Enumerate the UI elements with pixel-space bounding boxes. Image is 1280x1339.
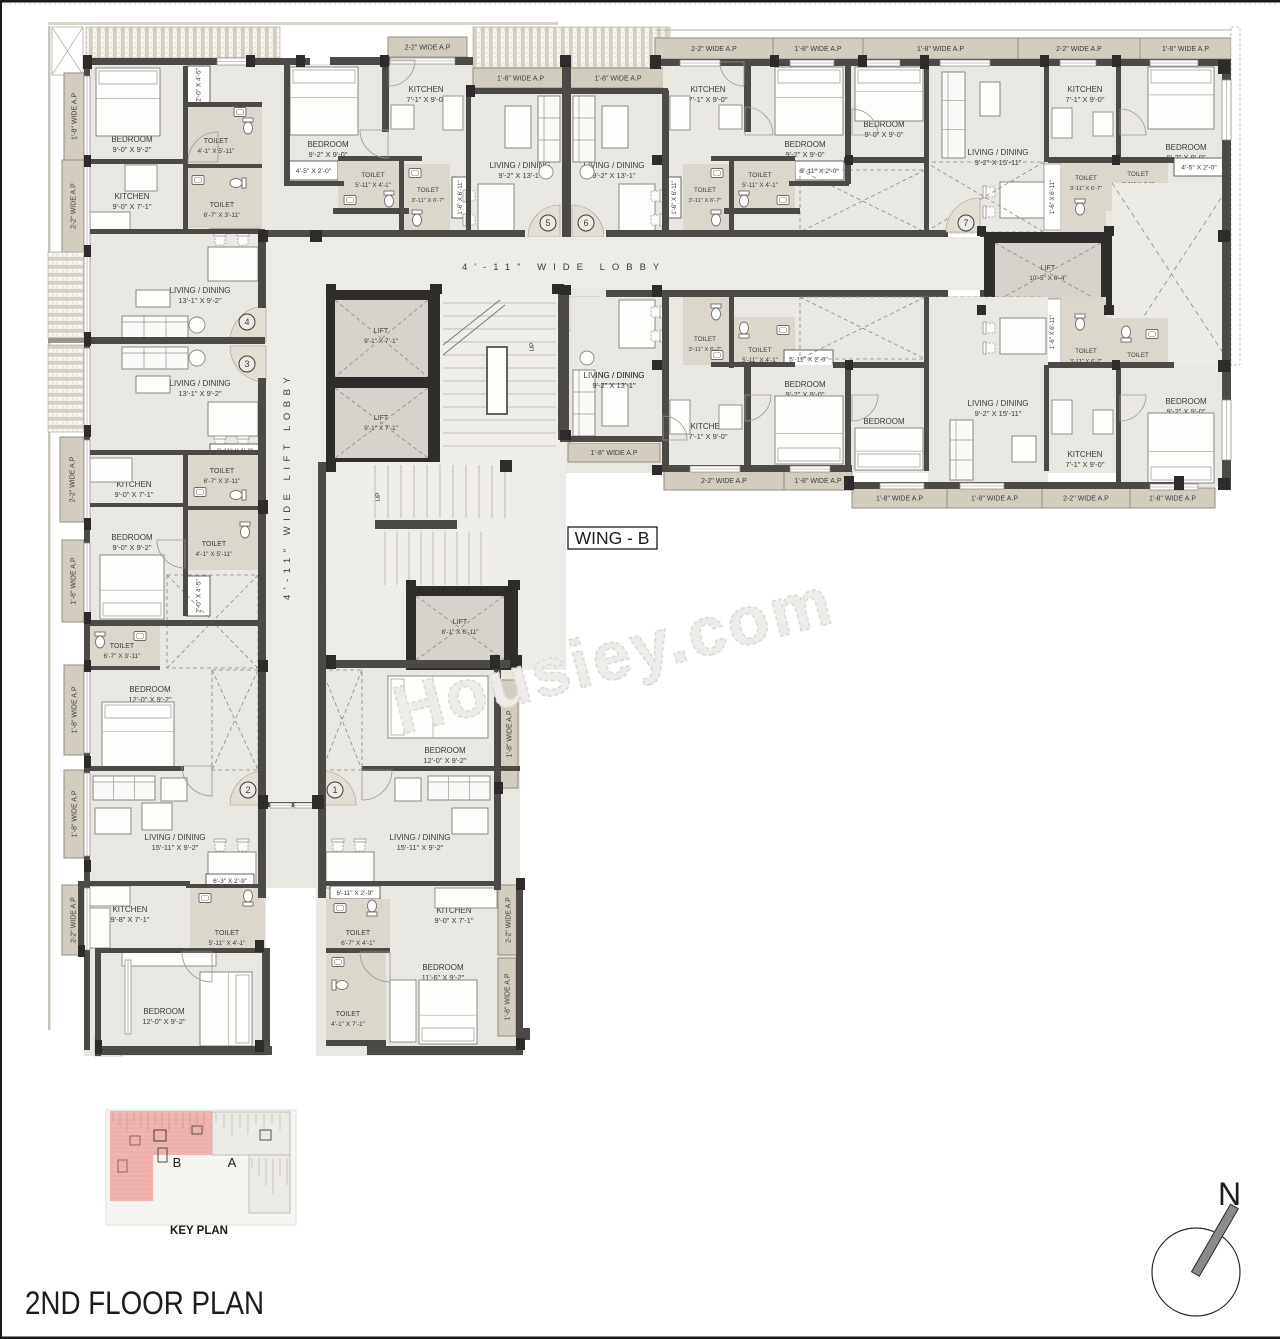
svg-text:2-2" WIDE A.P: 2-2" WIDE A.P <box>691 46 737 53</box>
svg-text:1'-8" WIDE A.P: 1'-8" WIDE A.P <box>1149 496 1196 503</box>
svg-text:TOILET: TOILET <box>110 643 135 650</box>
svg-text:TOILET: TOILET <box>1075 175 1097 182</box>
svg-text:LIVING / DINING: LIVING / DINING <box>145 833 206 842</box>
svg-text:TOILET: TOILET <box>361 172 385 179</box>
svg-text:5'-11" X 4'-1": 5'-11" X 4'-1" <box>355 182 391 189</box>
svg-text:UP: UP <box>529 342 536 351</box>
svg-text:TOILET: TOILET <box>748 172 772 179</box>
svg-text:TOILET: TOILET <box>694 187 716 194</box>
svg-text:1'-8" WIDE A.P: 1'-8" WIDE A.P <box>72 790 79 837</box>
svg-text:BEDROOM: BEDROOM <box>863 417 905 426</box>
svg-text:2-2" WIDE A.P: 2-2" WIDE A.P <box>405 45 451 52</box>
svg-text:LIFT: LIFT <box>1041 265 1056 272</box>
svg-text:6'-7" X 4'-1": 6'-7" X 4'-1" <box>341 940 376 947</box>
svg-text:3: 3 <box>244 359 249 369</box>
svg-text:2-2" WIDE A.P: 2-2" WIDE A.P <box>1056 46 1102 53</box>
svg-text:1'-8" WIDE A.P: 1'-8" WIDE A.P <box>1162 46 1209 53</box>
svg-text:LIFT: LIFT <box>374 415 389 422</box>
svg-text:KITCHEN: KITCHEN <box>1067 450 1102 459</box>
svg-text:12'-0" X 9'-2": 12'-0" X 9'-2" <box>142 1017 186 1026</box>
svg-text:BEDROOM: BEDROOM <box>1165 397 1207 406</box>
svg-text:1'-8" WIDE A.P: 1'-8" WIDE A.P <box>590 450 637 457</box>
svg-text:BEDROOM: BEDROOM <box>422 963 464 972</box>
svg-text:13'-1" X 9'-2": 13'-1" X 9'-2" <box>178 389 222 398</box>
svg-text:7'-1" X 9'-0": 7'-1" X 9'-0" <box>406 95 445 104</box>
svg-text:7'-1" X 9'-0": 7'-1" X 9'-0" <box>688 95 727 104</box>
svg-text:9'-0" X 7'-1": 9'-0" X 7'-1" <box>434 916 473 925</box>
svg-text:LIVING / DINING: LIVING / DINING <box>968 399 1029 408</box>
svg-text:TOILET: TOILET <box>202 541 227 548</box>
svg-text:15'-11" X 9'-2": 15'-11" X 9'-2" <box>397 843 444 852</box>
svg-text:BEDROOM: BEDROOM <box>111 533 153 542</box>
svg-text:9'-2" X 13'-1": 9'-2" X 13'-1" <box>592 171 636 180</box>
svg-text:9'-0" X 7'-1": 9'-0" X 7'-1" <box>112 202 151 211</box>
svg-text:B: B <box>173 1155 182 1170</box>
svg-text:7: 7 <box>963 218 968 228</box>
svg-text:LIVING / DINING: LIVING / DINING <box>584 371 645 380</box>
svg-text:4'-11" WIDE LOBBY: 4'-11" WIDE LOBBY <box>462 262 666 273</box>
svg-text:3'-11" X 6'-7": 3'-11" X 6'-7" <box>412 198 445 204</box>
svg-text:BEDROOM: BEDROOM <box>784 140 826 149</box>
svg-text:LIFT: LIFT <box>374 328 389 335</box>
svg-text:1'-8" WIDE A.P: 1'-8" WIDE A.P <box>794 46 841 53</box>
svg-text:7'-1" X 9'-0": 7'-1" X 9'-0" <box>688 432 727 441</box>
svg-text:6'-3" X 2'-9": 6'-3" X 2'-9" <box>213 878 248 885</box>
svg-text:TOILET: TOILET <box>1075 348 1097 355</box>
svg-text:6: 6 <box>583 218 588 228</box>
svg-text:TOILET: TOILET <box>1127 171 1149 178</box>
svg-text:9'-2" X 13'-1": 9'-2" X 13'-1" <box>592 381 636 390</box>
svg-text:TOILET: TOILET <box>417 187 439 194</box>
svg-text:1'-8" WIDE A.P: 1'-8" WIDE A.P <box>72 686 79 733</box>
svg-text:10'-5" X 6'-4": 10'-5" X 6'-4" <box>1029 275 1067 282</box>
svg-text:9'-8" X 7'-1": 9'-8" X 7'-1" <box>110 915 149 924</box>
svg-text:5'-11" X 2'-0": 5'-11" X 2'-0" <box>789 357 828 364</box>
svg-text:1'-8" WIDE A.P: 1'-8" WIDE A.P <box>71 557 78 604</box>
svg-text:4'-1" X 5'-11": 4'-1" X 5'-11" <box>196 551 234 558</box>
svg-text:5'-11" X 4'-1": 5'-11" X 4'-1" <box>742 182 778 189</box>
svg-text:2-2" WIDE A.P: 2-2" WIDE A.P <box>70 456 77 502</box>
svg-text:1'-6" X 6'-11": 1'-6" X 6'-11" <box>1050 180 1056 214</box>
svg-text:4'-1" X 7'-1": 4'-1" X 7'-1" <box>331 1021 366 1028</box>
svg-text:9'-1" X 7'-1": 9'-1" X 7'-1" <box>364 425 399 432</box>
svg-text:TOILET: TOILET <box>1127 352 1149 359</box>
svg-text:KEY PLAN: KEY PLAN <box>170 1225 228 1237</box>
svg-text:TOILET: TOILET <box>210 468 235 475</box>
svg-text:BEDROOM: BEDROOM <box>129 685 171 694</box>
svg-text:9'-2" X 13'-1": 9'-2" X 13'-1" <box>498 171 542 180</box>
svg-text:9'-2" X 15'-11": 9'-2" X 15'-11" <box>975 409 1022 418</box>
svg-text:3'-11" X 6'-7": 3'-11" X 6'-7" <box>689 198 722 204</box>
svg-text:4'-11" WIDE LIFT LOBBY: 4'-11" WIDE LIFT LOBBY <box>282 372 293 600</box>
svg-text:7'-1" X 9'-0": 7'-1" X 9'-0" <box>1065 460 1104 469</box>
svg-text:KITCHEN: KITCHEN <box>1067 85 1102 94</box>
svg-text:TOILET: TOILET <box>215 930 240 937</box>
svg-text:2'-0" X 4'-5": 2'-0" X 4'-5" <box>196 67 203 102</box>
svg-text:6'-11" X 2'-9": 6'-11" X 2'-9" <box>337 890 375 897</box>
svg-text:1'-8" WIDE A.P: 1'-8" WIDE A.P <box>505 973 512 1020</box>
svg-text:9'-0" X 7'-1": 9'-0" X 7'-1" <box>114 490 153 499</box>
svg-text:3'-11" X 6'-7": 3'-11" X 6'-7" <box>1070 186 1102 192</box>
svg-text:LIVING / DINING: LIVING / DINING <box>170 379 231 388</box>
svg-text:A: A <box>228 1155 237 1170</box>
svg-text:BEDROOM: BEDROOM <box>784 380 826 389</box>
svg-text:1'-8" WIDE A.P: 1'-8" WIDE A.P <box>794 478 841 485</box>
svg-text:8'-1" X 6'-11": 8'-1" X 6'-11" <box>442 629 480 636</box>
svg-text:9'-0" X 9'-2": 9'-0" X 9'-2" <box>112 145 151 154</box>
svg-text:9'-2" X 15'-11": 9'-2" X 15'-11" <box>975 158 1022 167</box>
svg-text:5'-11" X 2'-0": 5'-11" X 2'-0" <box>800 168 839 175</box>
svg-text:7'-1" X 9'-0": 7'-1" X 9'-0" <box>1065 95 1104 104</box>
svg-text:2-2" WIDE A.P: 2-2" WIDE A.P <box>701 478 747 485</box>
svg-text:4: 4 <box>244 317 249 327</box>
svg-text:TOILET: TOILET <box>748 347 772 354</box>
svg-text:LIVING / DINING: LIVING / DINING <box>170 286 231 295</box>
svg-text:KITCHEN: KITCHEN <box>114 192 149 201</box>
svg-text:BEDROOM: BEDROOM <box>424 746 466 755</box>
svg-text:1'-8" WIDE A.P: 1'-8" WIDE A.P <box>971 496 1018 503</box>
svg-text:TOILET: TOILET <box>694 336 716 343</box>
svg-text:1'-6" X 6'-11": 1'-6" X 6'-11" <box>1050 315 1056 349</box>
svg-text:12'-0" X 9'-2": 12'-0" X 9'-2" <box>423 756 467 765</box>
svg-text:5'-11" X 4'-1": 5'-11" X 4'-1" <box>209 940 247 947</box>
svg-text:KITCHEN: KITCHEN <box>408 85 443 94</box>
svg-text:4'-1" X 5'-11": 4'-1" X 5'-11" <box>198 148 236 155</box>
svg-text:2-2" WIDE A.P: 2-2" WIDE A.P <box>506 897 513 943</box>
svg-text:2-2" WIDE A.P: 2-2" WIDE A.P <box>1063 496 1109 503</box>
svg-text:13'-1" X 9'-2": 13'-1" X 9'-2" <box>178 296 222 305</box>
svg-text:LIVING / DINING: LIVING / DINING <box>390 833 451 842</box>
svg-text:15'-11" X 9'-2": 15'-11" X 9'-2" <box>152 843 199 852</box>
svg-text:1: 1 <box>332 785 337 795</box>
svg-text:BEDROOM: BEDROOM <box>143 1007 185 1016</box>
svg-text:N: N <box>1218 1176 1241 1212</box>
svg-text:2-2" WIDE A.P: 2-2" WIDE A.P <box>71 183 78 229</box>
svg-text:BEDROOM: BEDROOM <box>1165 143 1207 152</box>
svg-text:KITCHEN: KITCHEN <box>690 85 725 94</box>
svg-text:6'-7" X 3'-11": 6'-7" X 3'-11" <box>204 212 242 219</box>
svg-text:1'-8" WIDE A.P: 1'-8" WIDE A.P <box>72 93 79 140</box>
svg-text:5: 5 <box>545 218 550 228</box>
svg-text:9'-1" X 7'-1": 9'-1" X 7'-1" <box>364 338 399 345</box>
svg-text:9'-0" X 9'-2": 9'-0" X 9'-2" <box>112 543 151 552</box>
svg-text:4'-5" X 2'-0": 4'-5" X 2'-0" <box>296 168 332 175</box>
svg-text:TOILET: TOILET <box>210 202 235 209</box>
svg-text:TOILET: TOILET <box>346 930 371 937</box>
svg-text:TOILET: TOILET <box>336 1011 361 1018</box>
svg-text:4'-5" X 2'-0": 4'-5" X 2'-0" <box>1181 165 1217 172</box>
svg-text:TOILET: TOILET <box>204 138 229 145</box>
svg-text:1'-8" WIDE A.P: 1'-8" WIDE A.P <box>594 76 641 83</box>
svg-text:6'-7" X 3'-11": 6'-7" X 3'-11" <box>104 653 142 660</box>
svg-text:1'-8" WIDE A.P: 1'-8" WIDE A.P <box>497 76 544 83</box>
svg-text:2ND FLOOR PLAN: 2ND FLOOR PLAN <box>25 1285 264 1321</box>
svg-text:UP: UP <box>375 492 382 501</box>
svg-text:LIVING / DINING: LIVING / DINING <box>968 148 1029 157</box>
svg-text:9'-0" X 9'-0": 9'-0" X 9'-0" <box>864 130 903 139</box>
svg-text:1'-8" WIDE A.P: 1'-8" WIDE A.P <box>917 46 964 53</box>
svg-text:6'-7" X 3'-11": 6'-7" X 3'-11" <box>204 478 242 485</box>
svg-text:BEDROOM: BEDROOM <box>307 140 349 149</box>
svg-text:WING - B: WING - B <box>575 528 650 548</box>
svg-text:2: 2 <box>245 785 250 795</box>
svg-text:2-2" WIDE A.P: 2-2" WIDE A.P <box>71 897 78 943</box>
svg-text:1'-8" WIDE A.P: 1'-8" WIDE A.P <box>876 496 923 503</box>
svg-text:LIFT: LIFT <box>453 619 468 626</box>
svg-text:1'-6" X 6'-11": 1'-6" X 6'-11" <box>672 180 678 214</box>
